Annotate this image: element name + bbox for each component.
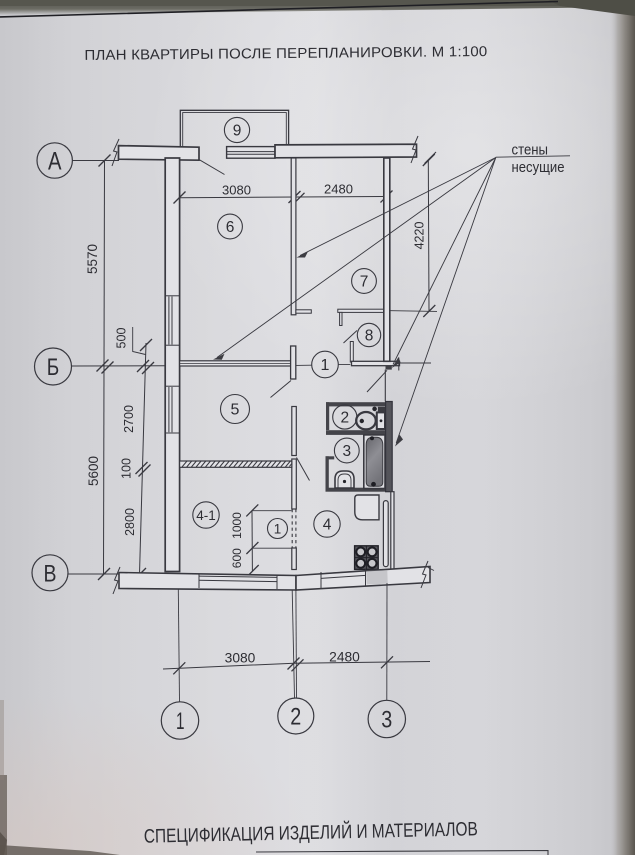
- svg-text:4-1: 4-1: [196, 508, 216, 523]
- svg-text:2480: 2480: [324, 182, 353, 197]
- svg-text:1: 1: [274, 521, 282, 536]
- svg-text:4: 4: [323, 516, 332, 533]
- svg-text:А: А: [48, 148, 62, 176]
- svg-text:3: 3: [342, 443, 351, 460]
- svg-text:4220: 4220: [413, 222, 427, 250]
- svg-text:600: 600: [230, 548, 244, 568]
- svg-text:В: В: [44, 561, 57, 588]
- svg-text:6: 6: [226, 219, 235, 236]
- svg-text:7: 7: [360, 273, 369, 290]
- svg-text:2800: 2800: [123, 508, 137, 536]
- svg-text:1000: 1000: [230, 512, 244, 539]
- svg-text:3080: 3080: [222, 182, 251, 197]
- svg-text:Б: Б: [47, 354, 60, 381]
- svg-text:2: 2: [340, 409, 349, 426]
- svg-text:5: 5: [231, 402, 240, 419]
- svg-text:500: 500: [115, 328, 129, 349]
- svg-text:9: 9: [233, 122, 242, 139]
- svg-text:100: 100: [120, 458, 134, 479]
- svg-text:3: 3: [381, 707, 392, 734]
- svg-text:2700: 2700: [122, 405, 136, 433]
- svg-text:5600: 5600: [86, 456, 101, 486]
- svg-text:1: 1: [321, 357, 330, 374]
- svg-text:несущие: несущие: [512, 160, 565, 176]
- svg-text:1: 1: [176, 708, 185, 735]
- svg-text:5570: 5570: [85, 244, 100, 274]
- svg-text:8: 8: [365, 327, 374, 344]
- svg-text:2480: 2480: [329, 649, 360, 664]
- svg-text:2: 2: [290, 704, 301, 731]
- svg-text:3080: 3080: [225, 651, 256, 666]
